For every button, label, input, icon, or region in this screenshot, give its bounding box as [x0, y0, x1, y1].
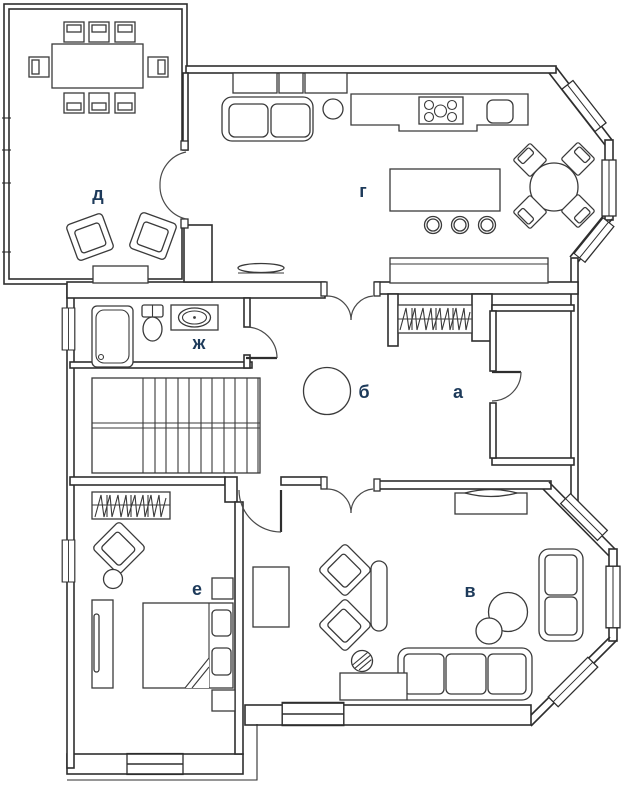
toilet: [142, 305, 163, 341]
sideboard: [93, 266, 148, 283]
wardrobe: [92, 600, 113, 688]
room-bedroom: [92, 492, 235, 711]
floor-plan-page: д г ж б а е в: [0, 0, 622, 785]
radiator: [238, 264, 284, 274]
dining-chair: [115, 93, 135, 113]
dining-chair: [29, 57, 49, 77]
washbasin: [171, 305, 218, 330]
dining-chair: [64, 93, 84, 113]
armchair: [129, 212, 178, 261]
dining-chair: [64, 22, 84, 42]
armchair: [92, 521, 146, 575]
stove: [419, 97, 463, 124]
dining-chair: [115, 22, 135, 42]
sofa-two-seat: [539, 549, 583, 641]
room-label-b: б: [358, 382, 369, 402]
dining-chair: [89, 22, 109, 42]
armchair: [318, 598, 372, 652]
kitchen-sink: [487, 100, 513, 123]
wall-store-north: [492, 305, 574, 311]
bench: [371, 561, 387, 631]
coffee-tables: [476, 593, 528, 645]
room-label-g: г: [359, 181, 367, 201]
wall-veranda-east: [183, 73, 188, 150]
wall-kitchen-south: [375, 282, 578, 294]
room-veranda: [29, 22, 177, 283]
room-label-a: а: [453, 382, 464, 402]
door-bedroom: [239, 490, 281, 532]
stool: [347, 646, 377, 676]
window: [127, 754, 183, 774]
staircase: [92, 378, 260, 473]
window: [562, 81, 606, 132]
room-label-d: д: [92, 184, 104, 204]
room-label-zh: ж: [192, 333, 206, 353]
bar-stool: [425, 217, 442, 234]
wall-bath-east-upper: [244, 298, 250, 327]
window: [62, 308, 75, 350]
pillow: [212, 610, 231, 636]
wall-kitchen-north: [186, 66, 556, 73]
wall-corridor-west: [70, 477, 225, 485]
wall-store-south: [492, 458, 574, 465]
wall-store-west-lower: [490, 403, 496, 458]
wall-north-band: [67, 282, 325, 298]
wardrobe-with-hangers: [92, 492, 170, 519]
wall-bedroom-east: [235, 502, 243, 754]
dining-chair: [89, 93, 109, 113]
dresser: [253, 567, 289, 627]
closet-post-right: [472, 294, 492, 341]
pillow: [212, 648, 231, 675]
window: [62, 540, 75, 582]
window: [606, 566, 620, 628]
bar-stool: [479, 217, 496, 234]
wall-living-north: [375, 481, 551, 489]
bed: [143, 603, 233, 688]
closet-post-left: [388, 294, 398, 346]
floor-plan-drawing: д г ж б а е в: [0, 0, 622, 785]
wall-corridor-post: [225, 477, 237, 502]
sofa-three-seat: [398, 648, 532, 700]
double-door-hall-living: [321, 477, 380, 513]
window: [561, 494, 608, 541]
side-table: [104, 570, 123, 589]
room-label-e: е: [192, 579, 202, 599]
room-living: [253, 490, 583, 701]
bar-stool: [452, 217, 469, 234]
console-table: [340, 673, 407, 700]
closet-with-hangers: [398, 305, 472, 333]
nightstand: [212, 690, 235, 711]
window: [602, 160, 616, 216]
bathtub: [92, 306, 133, 367]
sideboard-low: [390, 258, 548, 283]
door-bathroom: [246, 327, 277, 358]
armchair: [318, 543, 372, 597]
double-door-hall-kitchen: [321, 282, 380, 320]
kitchen-island: [390, 169, 500, 211]
wall-corridor-east: [281, 477, 325, 485]
room-label-v: в: [464, 581, 475, 601]
side-table: [323, 99, 343, 119]
round-table: [304, 368, 351, 415]
dining-chair: [148, 57, 168, 77]
tv-cabinet: [455, 490, 527, 515]
window: [282, 703, 344, 725]
wall-west: [67, 286, 74, 768]
chimney-block: [184, 225, 212, 282]
nightstand: [212, 578, 233, 599]
window: [548, 657, 597, 706]
wall-mid-east: [571, 258, 578, 513]
dining-table: [52, 44, 143, 88]
wall-store-west-upper: [490, 311, 496, 371]
door-store: [492, 372, 521, 401]
room-kitchen: [222, 73, 595, 283]
armchair: [66, 213, 115, 262]
